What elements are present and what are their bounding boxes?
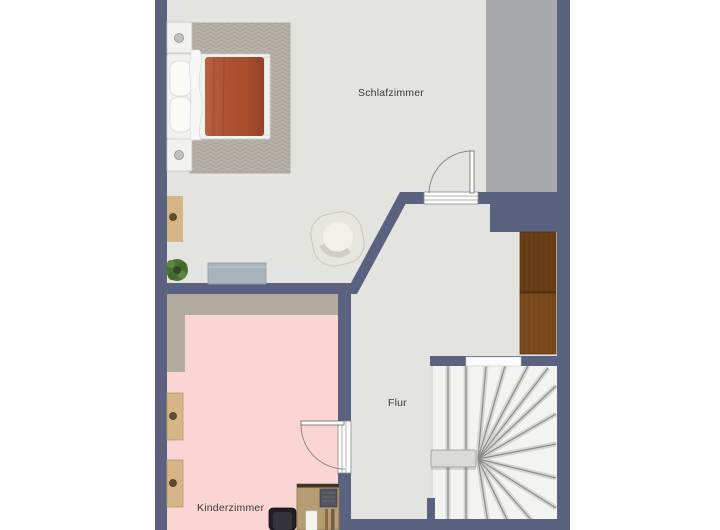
door-leaf <box>301 421 344 425</box>
wardrobe-divider <box>520 291 556 294</box>
laptop <box>320 489 337 507</box>
knob <box>175 151 184 160</box>
desk-edge <box>297 484 339 488</box>
potted-plant <box>166 259 188 281</box>
sideboard <box>208 263 266 284</box>
wall-kinderzimmer-flur-upper <box>338 283 351 421</box>
wardrobe-upper <box>520 232 556 293</box>
armchair-seat <box>323 222 353 252</box>
wall-shelf-kinderzimmer-2 <box>167 460 183 507</box>
schlafzimmer-low-ceiling-zone <box>486 0 557 192</box>
pencil <box>331 509 335 530</box>
pencil <box>325 509 328 530</box>
floorplan-drawing <box>0 0 720 530</box>
wall-flur-corner-block <box>490 204 557 232</box>
wall-right <box>557 0 570 530</box>
kinderzimmer-label: Kinderzimmer <box>197 502 264 514</box>
wall-shelf-schlafzimmer <box>167 196 183 242</box>
wardrobe-lower <box>520 293 556 354</box>
wall-kinderzimmer-flur-lower <box>338 473 351 530</box>
desk-chair <box>269 508 296 530</box>
wall-stair-stub <box>427 498 435 530</box>
flur-label: Flur <box>388 397 407 409</box>
bed-side-rail <box>264 57 270 135</box>
bed-sheet-fold <box>189 50 202 140</box>
wall-door-right-segment <box>477 192 557 204</box>
stair-newel-wall <box>431 450 476 467</box>
stair-opening <box>466 357 521 366</box>
pillow <box>170 61 191 96</box>
paper-sheet <box>306 511 317 530</box>
door-threshold <box>424 192 478 204</box>
wall-door-left-jamb-segment <box>400 192 425 204</box>
wardrobe <box>520 232 556 354</box>
chair-seat <box>273 512 292 530</box>
door-threshold <box>338 421 351 473</box>
double-bed <box>167 50 270 140</box>
nightstand-bottom <box>167 139 192 171</box>
knob <box>170 480 177 487</box>
schlafzimmer-label: Schlafzimmer <box>358 87 424 99</box>
kinderzimmer-low-ceiling-zone-top <box>163 294 340 315</box>
wall-left <box>155 0 167 530</box>
pillow <box>170 97 191 132</box>
knob <box>170 214 177 221</box>
flur-furniture <box>520 232 556 354</box>
door-leaf <box>470 151 474 193</box>
nightstand-top <box>167 22 192 53</box>
wall-bottom <box>347 519 570 530</box>
wall-shelf-kinderzimmer-1 <box>167 393 183 440</box>
winder-staircase <box>430 366 557 530</box>
floorplan-canvas: Schlafzimmer Flur Kinderzimmer <box>0 0 720 530</box>
kids-desk <box>297 484 339 530</box>
knob <box>175 34 184 43</box>
knob <box>170 413 177 420</box>
wall-schlafzimmer-kinderzimmer <box>155 283 352 294</box>
